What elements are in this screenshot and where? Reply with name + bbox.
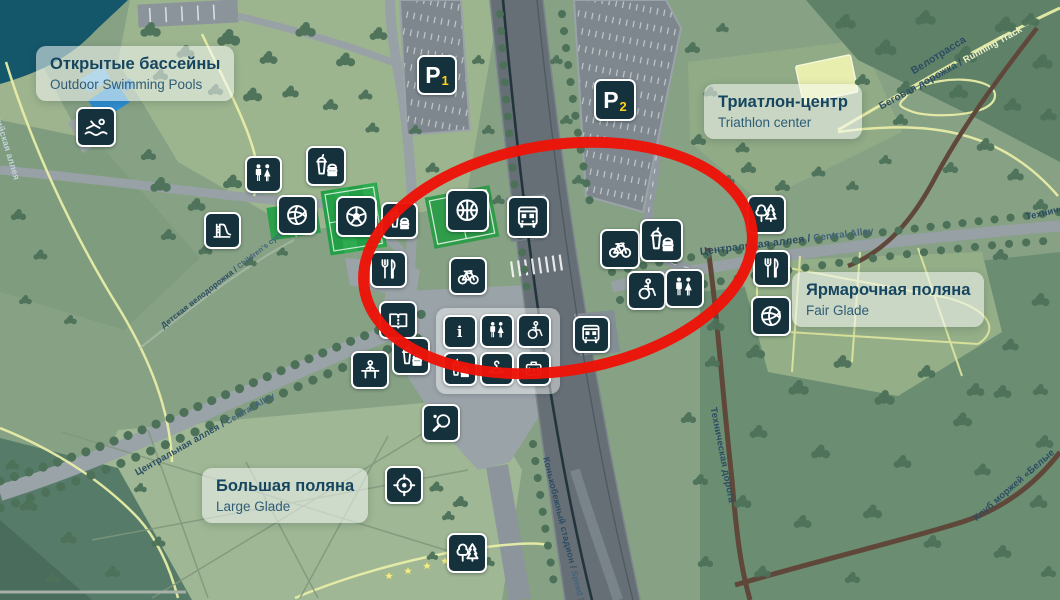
info-point-icon: i	[443, 315, 477, 349]
bike-rental-icon	[449, 257, 487, 295]
workout-area-icon	[351, 351, 389, 389]
parking-number: 2	[620, 99, 627, 114]
volleyball-court-icon	[277, 195, 317, 235]
label-card-triathlon: Триатлон-центр Triathlon center	[704, 84, 862, 139]
toilets-icon	[245, 156, 282, 193]
forest-area-icon-2	[747, 195, 786, 234]
basketball-court-icon	[446, 189, 489, 232]
playground-slide-icon	[204, 212, 241, 249]
shooting-range-icon	[385, 466, 423, 504]
first-aid-icon	[517, 352, 551, 386]
large-glade-subtitle: Large Glade	[216, 499, 354, 514]
accessible-route-icon	[627, 271, 666, 310]
parking-letter: P	[425, 64, 440, 87]
large-glade-title: Большая поляна	[216, 476, 354, 497]
swimming-pool-icon	[76, 107, 116, 147]
parking-number: 1	[442, 73, 449, 88]
label-card-large-glade: Большая поляна Large Glade	[202, 468, 368, 523]
forest-area-icon	[447, 533, 487, 573]
triathlon-title: Триатлон-центр	[718, 92, 848, 113]
food-kiosk-icon-4	[443, 352, 477, 386]
restaurant-icon	[370, 251, 407, 288]
food-kiosk-icon	[381, 202, 418, 239]
fair-glade-subtitle: Fair Glade	[806, 303, 970, 318]
cloakroom-icon	[480, 352, 514, 386]
label-card-pools: Открытые бассейны Outdoor Swimming Pools	[36, 46, 234, 101]
parking-icon-2: P2	[594, 79, 636, 121]
food-kiosk-icon-2	[640, 219, 683, 262]
triathlon-subtitle: Triathlon center	[718, 115, 848, 130]
toilets-icon-2	[665, 269, 704, 308]
fair-glade-title: Ярмарочная поляна	[806, 280, 970, 301]
svg-text:i: i	[457, 324, 463, 341]
volleyball-court-icon-2	[751, 296, 791, 336]
label-card-fair-glade: Ярмарочная поляна Fair Glade	[792, 272, 984, 327]
table-tennis-icon	[422, 404, 460, 442]
bike-rental-icon-2	[600, 229, 640, 269]
pools-subtitle: Outdoor Swimming Pools	[50, 77, 220, 92]
pools-title: Открытые бассейны	[50, 54, 220, 75]
restaurant-icon-2	[753, 250, 790, 287]
bus-stop-icon-3	[573, 316, 610, 353]
football-field-icon	[336, 196, 377, 237]
toilets-icon-3	[480, 314, 514, 348]
accessible-toilet-icon	[517, 314, 551, 348]
reading-room-icon	[379, 301, 417, 339]
food-kiosk-icon-3	[392, 337, 430, 375]
parking-letter: P	[603, 89, 618, 112]
parking-icon-1: P1	[417, 55, 457, 95]
park-map: Центральная аллея / Central AlleyЦентрал…	[0, 0, 1060, 600]
bus-stop-icon	[507, 196, 549, 238]
food-court-icon	[306, 146, 346, 186]
